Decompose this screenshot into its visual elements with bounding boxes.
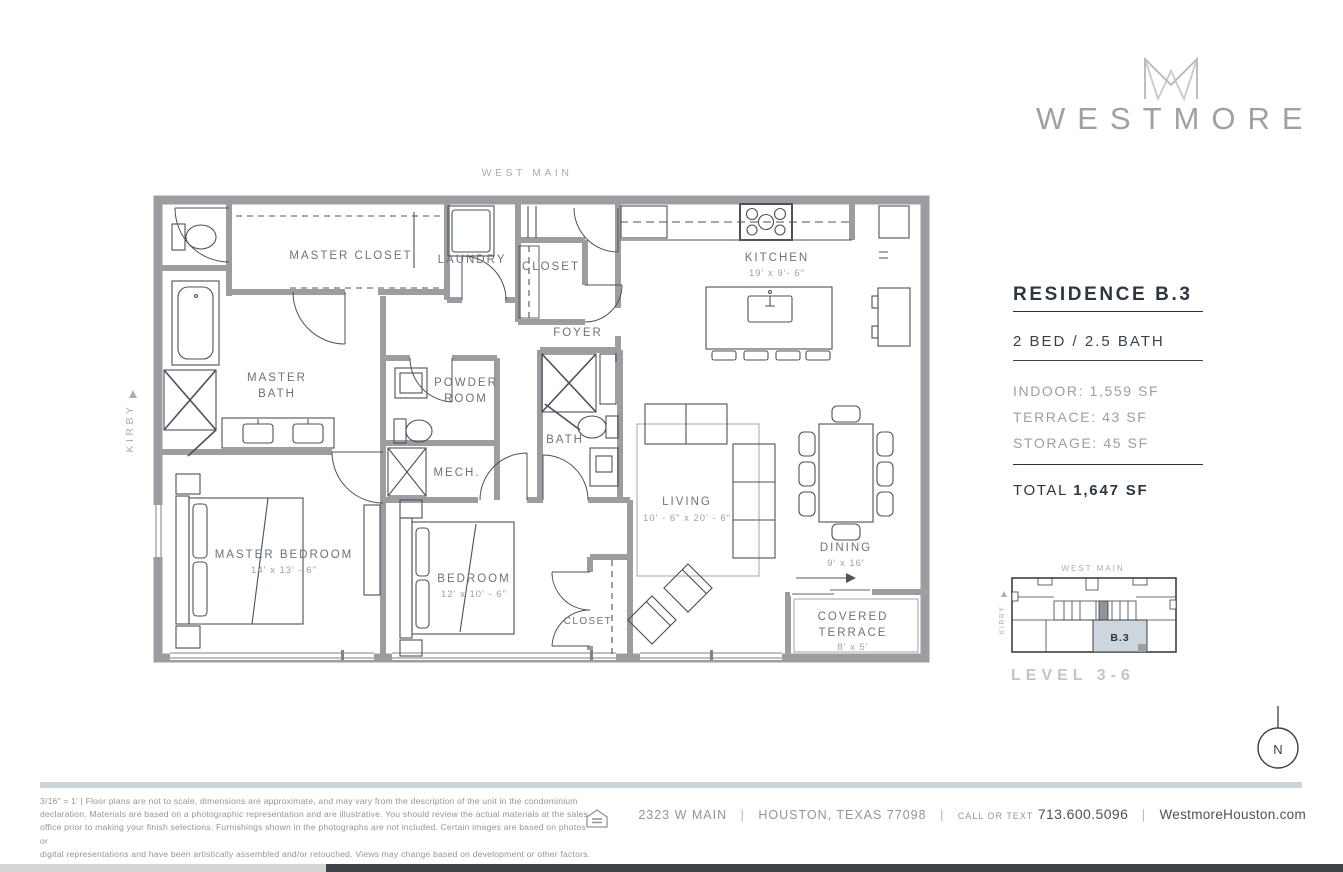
compass-icon: N — [1246, 704, 1310, 774]
svg-text:KIRBY: KIRBY — [124, 403, 136, 452]
nightstand-icon — [176, 626, 200, 648]
divider — [1013, 360, 1203, 361]
accent-chair-icon — [628, 596, 676, 644]
street-label-kirby: KIRBY — [124, 390, 137, 453]
windows — [153, 505, 872, 660]
label-hall-closet: CLOSET — [522, 261, 580, 273]
beds-baths: 2 BED / 2.5 BATH — [1013, 333, 1165, 350]
label-foyer: FOYER — [553, 327, 603, 339]
door-swings — [175, 208, 622, 646]
total-value: 1,647 SF — [1073, 482, 1148, 499]
label-dining: DINING — [820, 542, 872, 554]
label-terrace-2: TERRACE — [819, 627, 888, 639]
dims-dining: 9' x 16' — [827, 558, 865, 569]
level-label: LEVEL 3-6 — [1011, 667, 1135, 685]
chair-icon — [877, 492, 893, 516]
headboard-icon — [176, 496, 189, 624]
area-list: INDOOR: 1,559 SF TERRACE: 43 SF STORAGE:… — [1013, 378, 1159, 456]
brand-wordmark: WESTMORE — [1036, 101, 1315, 137]
chair-icon — [799, 462, 815, 486]
chair-icon — [877, 432, 893, 456]
label-bath: BATH — [546, 434, 584, 446]
city: HOUSTON, TEXAS 77098 — [758, 808, 926, 822]
contact-bar: 2323 W MAIN | HOUSTON, TEXAS 77098 | CAL… — [638, 806, 1306, 822]
call-label: CALL OR TEXT — [958, 811, 1034, 821]
compass-north-label: N — [1273, 742, 1282, 757]
footer-divider-bar — [40, 782, 1302, 788]
street-label-west-main: WEST MAIN — [482, 167, 573, 179]
siteplan-street-top: WEST MAIN — [1061, 564, 1124, 573]
accent-chair-icon — [664, 564, 712, 612]
label-master-closet: MASTER CLOSET — [289, 250, 412, 262]
bottom-bar-light — [0, 864, 326, 872]
address: 2323 W MAIN — [638, 808, 727, 822]
label-powder-1: POWDER — [434, 377, 498, 389]
divider — [1013, 311, 1203, 312]
dims-kitchen: 19' x 9'- 6" — [749, 268, 805, 279]
website: WestmoreHouston.com — [1159, 807, 1306, 822]
label-powder-2: ROOM — [444, 393, 488, 405]
bed-icon — [189, 498, 303, 624]
equal-housing-icon — [586, 808, 608, 829]
refrigerator-icon — [878, 288, 910, 346]
floor-plan: WEST MAIN KIRBY — [115, 155, 945, 685]
label-kitchen: KITCHEN — [745, 252, 809, 264]
label-bedroom-closet: CLOSET — [564, 616, 612, 627]
toilet-icon — [606, 416, 618, 438]
sink-icon — [590, 448, 618, 486]
bottom-bar-dark — [326, 864, 1343, 872]
chair-icon — [799, 432, 815, 456]
sofa-chaise-icon — [733, 444, 775, 558]
svg-text:KIRBY: KIRBY — [999, 606, 1006, 635]
label-master-bedroom: MASTER BEDROOM — [215, 549, 354, 561]
label-laundry: LAUNDRY — [438, 254, 507, 266]
washer-dryer-icon — [448, 206, 494, 256]
westmore-monogram-icon — [1142, 56, 1200, 102]
nightstand-icon — [176, 474, 200, 494]
residence-title: RESIDENCE B.3 — [1013, 284, 1193, 306]
label-living: LIVING — [662, 496, 712, 508]
dims-terrace: 8' x 5' — [837, 642, 868, 653]
chair-icon — [832, 524, 860, 540]
siteplan-unit-label: B.3 — [1110, 632, 1129, 644]
storage-area: STORAGE: 45 SF — [1013, 430, 1159, 456]
label-master-bath-1: MASTER — [247, 372, 307, 384]
phone-number: 713.600.5096 — [1038, 806, 1128, 822]
total-area: TOTAL 1,647 SF — [1013, 482, 1148, 499]
dining-table-icon — [819, 424, 873, 522]
label-mech: MECH. — [433, 467, 480, 479]
stool-icon — [712, 351, 736, 360]
disclaimer-text: 3/16" = 1' | Floor plans are not to scal… — [40, 795, 592, 861]
chair-icon — [832, 406, 860, 422]
toilet-icon — [394, 419, 406, 443]
siteplan-street-left: KIRBY — [999, 591, 1007, 634]
chair-icon — [877, 462, 893, 486]
terrace-area: TERRACE: 43 SF — [1013, 404, 1159, 430]
divider — [1013, 464, 1203, 465]
dresser-icon — [364, 505, 380, 595]
chair-icon — [799, 492, 815, 516]
flyer-page: WESTMORE WEST MAIN KIRBY — [0, 0, 1343, 872]
dims-master-bedroom: 14' x 13' - 6" — [251, 565, 317, 576]
stool-icon — [776, 351, 800, 360]
site-plan: WEST MAIN KIRBY B.3 — [995, 558, 1195, 656]
label-bedroom: BEDROOM — [437, 573, 510, 585]
label-terrace-1: COVERED — [818, 611, 889, 623]
stool-icon — [744, 351, 768, 360]
label-master-bath-2: BATH — [258, 388, 296, 400]
dims-bedroom: 12' x 10' - 6" — [441, 589, 507, 600]
indoor-area: INDOOR: 1,559 SF — [1013, 378, 1159, 404]
stool-icon — [806, 351, 830, 360]
headboard-icon — [400, 518, 412, 638]
dims-living: 10' - 6" x 20' - 6" — [643, 513, 731, 524]
